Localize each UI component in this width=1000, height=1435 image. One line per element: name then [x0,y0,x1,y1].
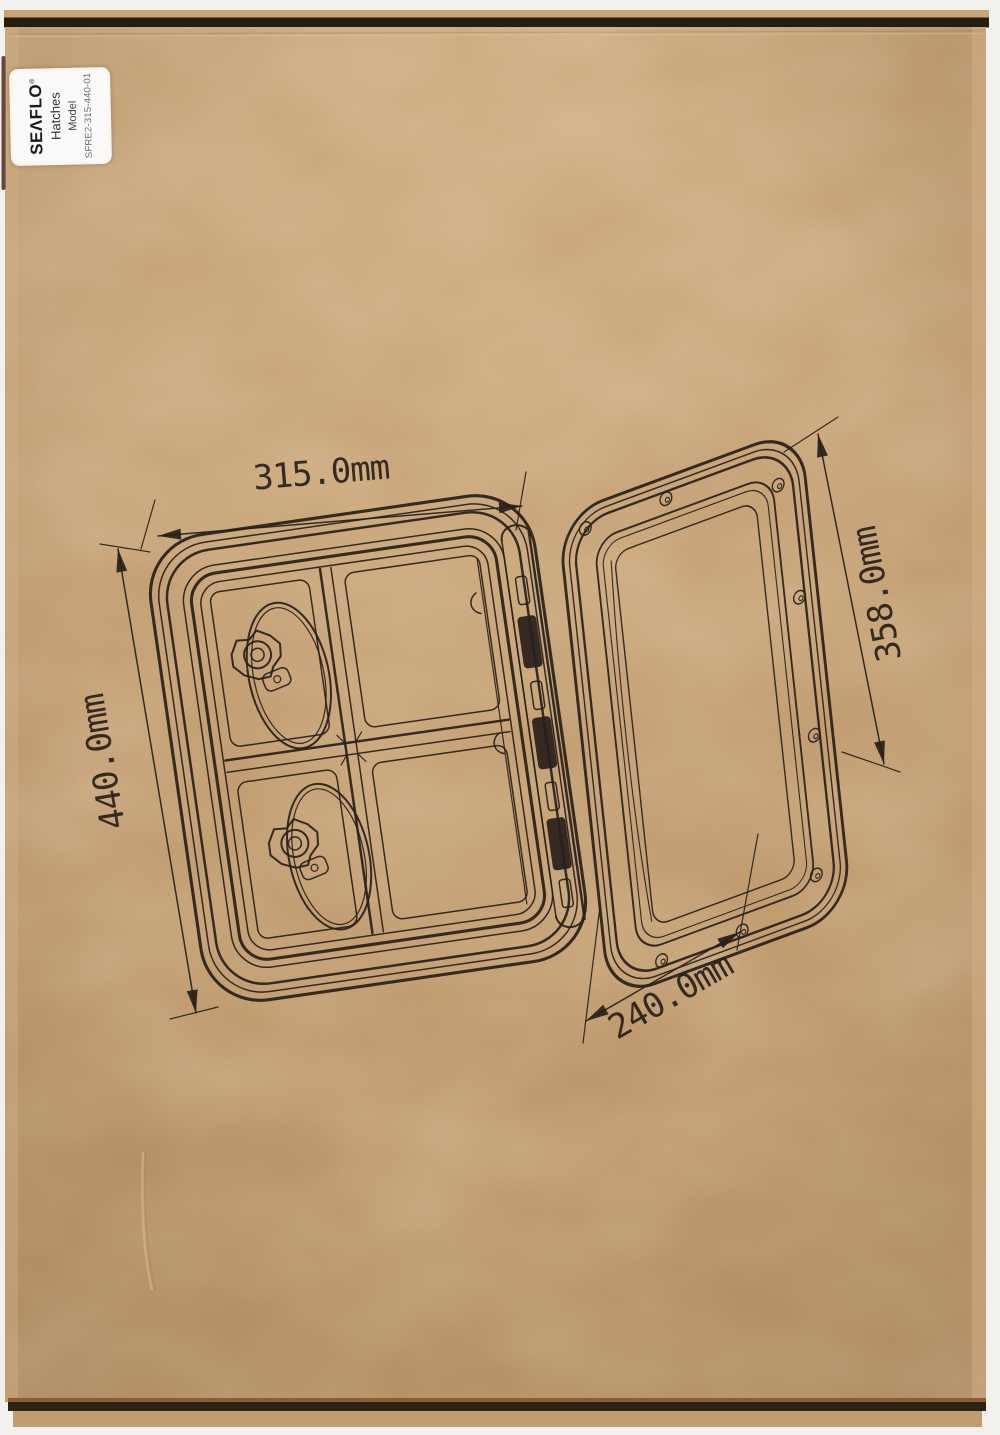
cardboard-box [2,10,990,1427]
box-top-edge-shadow [4,18,989,28]
cardboard-box-scene: 315.0mm 440.0mm 358.0mm [0,0,1000,1435]
model-number-text: SFRE2-315-440-01 [77,55,102,175]
box-top-sliver [4,10,989,18]
left-edge-gap [2,56,6,190]
brand-logo-text: SEΛFLO® [22,56,47,176]
box-bottom-edge [8,1398,986,1427]
product-label: SEΛFLO® Hatches Model SFRE2-315-440-01 [9,67,112,166]
cardboard-vignette [5,27,986,1402]
registered-mark: ® [29,78,36,84]
box-photo: 315.0mm 440.0mm 358.0mm [0,0,1000,1435]
brand-name: SEΛFLO [26,84,47,155]
